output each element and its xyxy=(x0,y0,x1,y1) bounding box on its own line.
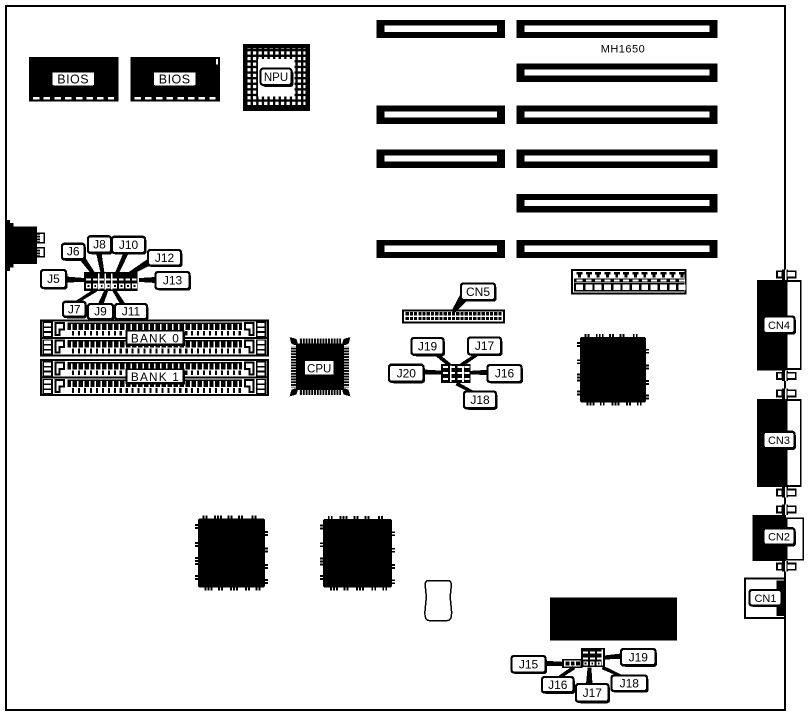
svg-text:MH1650: MH1650 xyxy=(601,44,646,56)
svg-text:NPU: NPU xyxy=(264,72,288,84)
svg-text:BANK 1: BANK 1 xyxy=(131,370,180,384)
svg-text:J12: J12 xyxy=(155,251,175,265)
svg-text:J8: J8 xyxy=(93,238,106,252)
svg-text:J10: J10 xyxy=(119,238,139,252)
svg-text:J13: J13 xyxy=(163,274,183,288)
svg-text:CN3: CN3 xyxy=(768,435,790,447)
svg-text:J17: J17 xyxy=(583,686,603,700)
svg-text:J19: J19 xyxy=(418,339,438,353)
svg-text:J18: J18 xyxy=(620,676,640,690)
svg-text:J5: J5 xyxy=(47,272,60,286)
svg-text:J17: J17 xyxy=(475,339,495,353)
svg-text:J18: J18 xyxy=(470,393,490,407)
svg-text:J9: J9 xyxy=(94,305,107,319)
svg-text:J16: J16 xyxy=(495,367,515,381)
svg-text:J19: J19 xyxy=(629,650,649,664)
svg-text:BIOS: BIOS xyxy=(57,73,89,87)
svg-text:J7: J7 xyxy=(68,302,81,316)
svg-text:J11: J11 xyxy=(122,305,141,319)
svg-text:J20: J20 xyxy=(397,366,417,380)
svg-text:J15: J15 xyxy=(519,657,539,671)
svg-text:CN5: CN5 xyxy=(466,285,490,299)
svg-text:BIOS: BIOS xyxy=(159,73,191,87)
svg-text:CN2: CN2 xyxy=(768,532,790,544)
svg-text:CN4: CN4 xyxy=(768,320,790,332)
svg-text:J16: J16 xyxy=(548,678,568,692)
svg-text:BANK 0: BANK 0 xyxy=(131,331,180,345)
svg-text:CN1: CN1 xyxy=(754,593,776,605)
svg-text:CPU: CPU xyxy=(307,363,331,375)
svg-text:J6: J6 xyxy=(67,245,80,259)
